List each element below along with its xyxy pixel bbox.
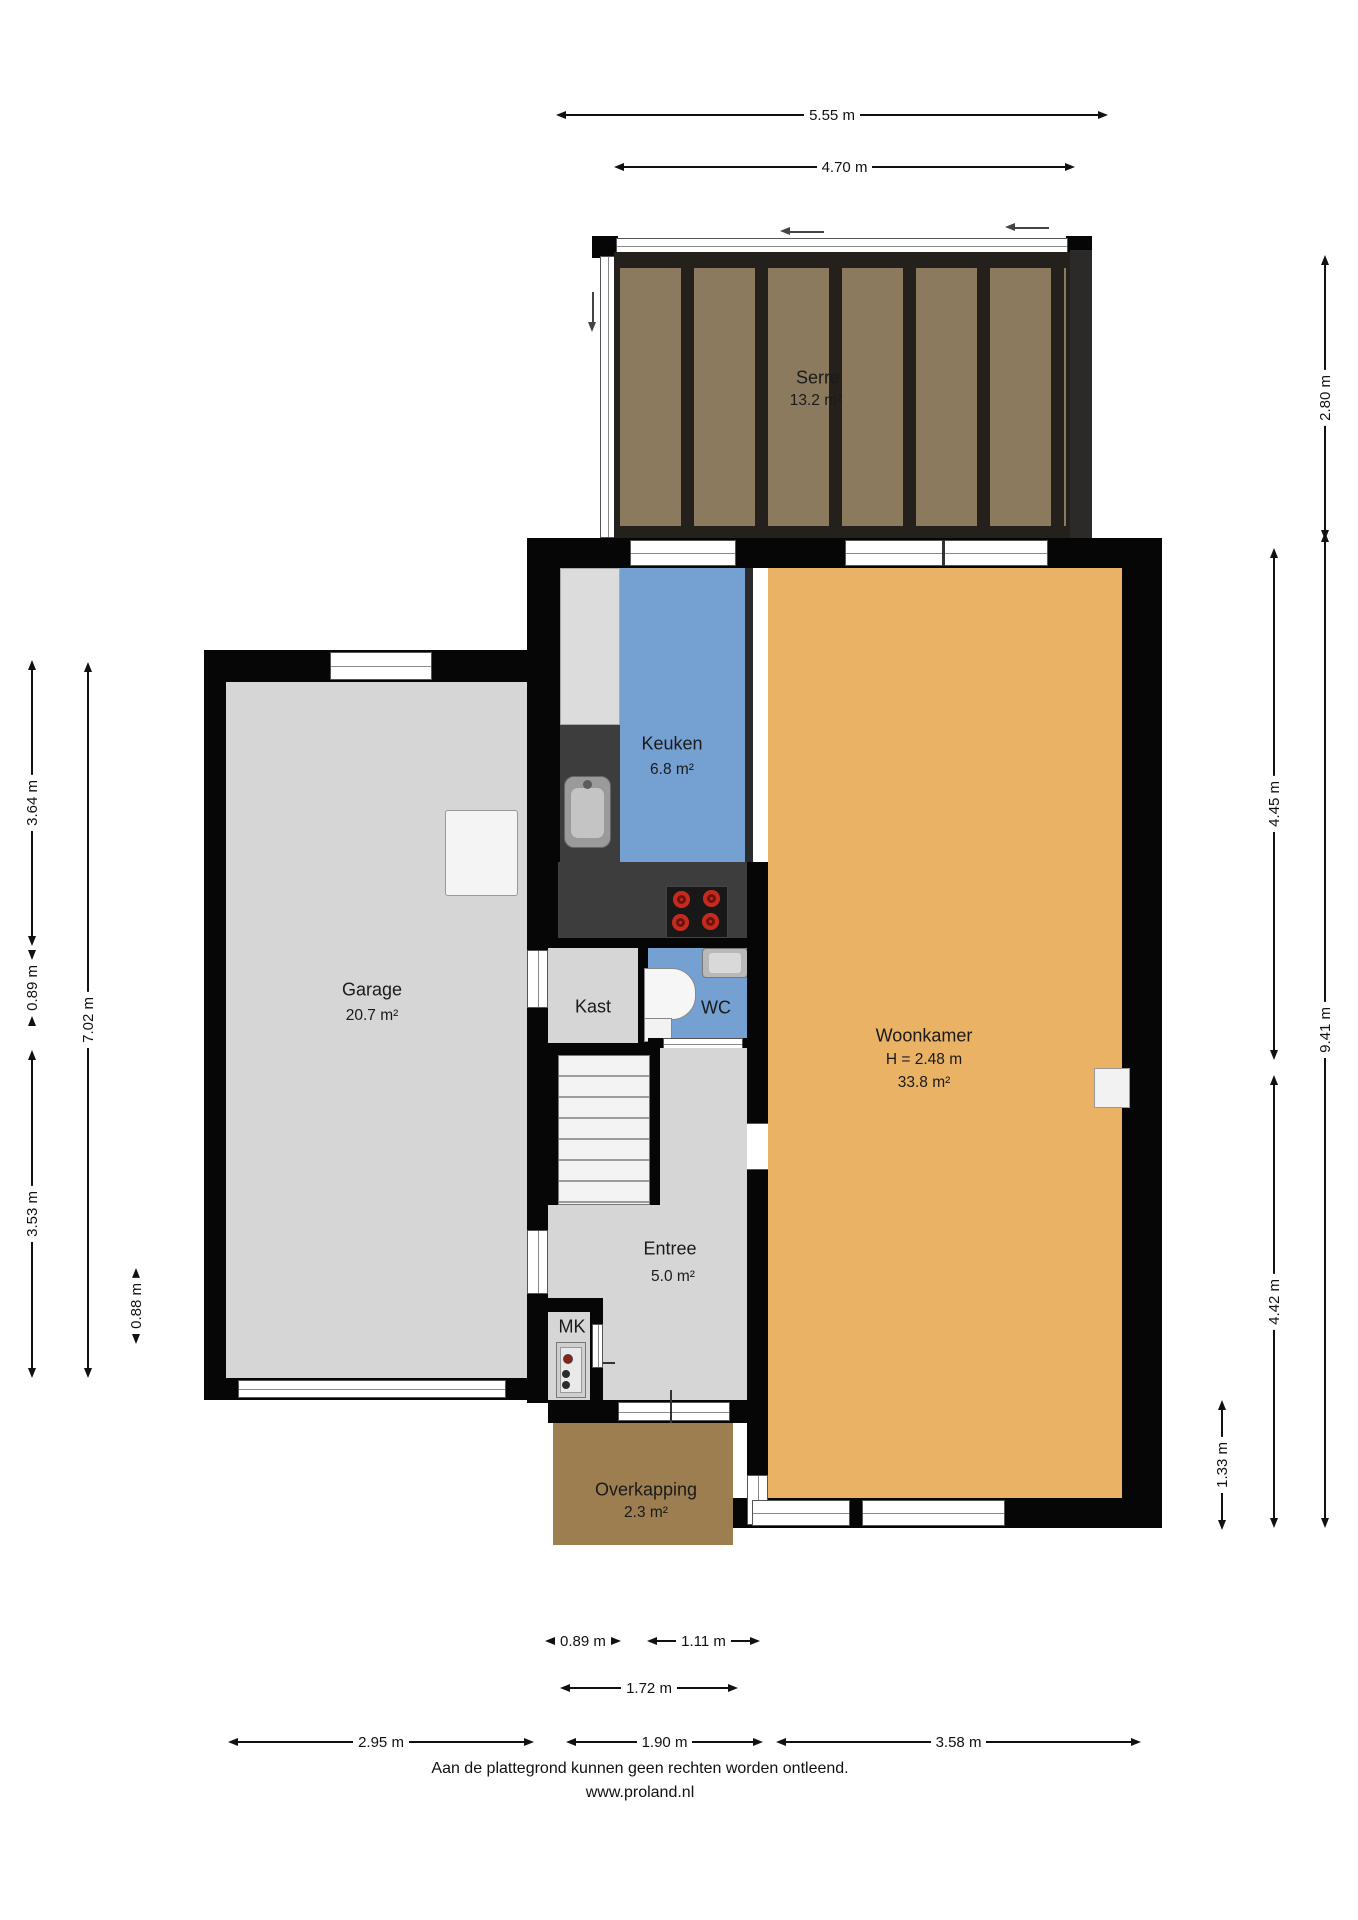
dim-arrow-icon (611, 1637, 621, 1645)
dim-arrow-icon (776, 1738, 786, 1746)
room-label-wc: WC (701, 998, 731, 1019)
kast-floor (548, 948, 638, 1043)
staircase (558, 1055, 650, 1205)
dim-bottom-door: 1.11 m (647, 1631, 760, 1651)
sliding-door-mullion (942, 540, 945, 566)
dim-arrow-icon (1321, 1518, 1329, 1528)
disclaimer-text: Aan de plattegrond kunnen geen rechten w… (0, 1760, 1280, 1778)
room-label-entree: Entree (643, 1239, 696, 1260)
stairs-right-wall (650, 1043, 660, 1205)
dim-arrow-icon (1270, 548, 1278, 558)
kitchen-hall-wall (548, 938, 747, 948)
stairs-top-wall (545, 1043, 660, 1055)
room-label-overkapping: Overkapping (595, 1480, 697, 1501)
entree-corridor-floor (660, 1048, 747, 1205)
dim-arrow-icon (28, 660, 36, 670)
dim-arrow-icon (132, 1334, 140, 1344)
kitchen-sink-basin (571, 788, 604, 838)
room-label-mk: MK (559, 1317, 586, 1338)
entree-living-doorway (747, 1123, 768, 1170)
meter-indicator-dark (562, 1381, 570, 1389)
garage-top-window (330, 652, 432, 680)
dim-right-total: 9.41 m (1313, 532, 1337, 1528)
kitchen-living-divider (745, 568, 753, 862)
dim-right-lower: 4.42 m (1262, 1075, 1286, 1528)
room-label-keuken: Keuken (641, 734, 702, 755)
toilet-icon (644, 968, 696, 1020)
dim-arrow-icon (753, 1738, 763, 1746)
room-area-overkapping: 2.3 m² (624, 1504, 668, 1522)
dim-arrow-icon (28, 1050, 36, 1060)
dim-right-serre: 2.80 m (1313, 255, 1337, 540)
dim-left-lower: 3.53 m (20, 1050, 44, 1378)
living-bottom-window-right (862, 1500, 1005, 1526)
room-label-serre: Serre (796, 368, 840, 389)
entry-arrow-line (592, 292, 594, 322)
dim-left-small: 0.89 m (20, 950, 44, 1046)
room-label-kast: Kast (575, 997, 611, 1018)
dim-arrow-icon (1270, 1075, 1278, 1085)
vent-arrow-line-1 (788, 231, 824, 233)
dim-arrow-icon (1065, 163, 1075, 171)
garage-bottom-window (238, 1380, 506, 1398)
room-area-woonkamer: 33.8 m² (898, 1074, 951, 1092)
mk-door (592, 1324, 603, 1368)
dim-top-outer: 5.55 m (556, 105, 1108, 125)
dim-arrow-icon (228, 1738, 238, 1746)
dim-right-small: 1.33 m (1210, 1400, 1234, 1530)
room-label-garage: Garage (342, 980, 402, 1001)
garage-boiler-cabinet (445, 810, 518, 896)
dim-arrow-icon (84, 1368, 92, 1378)
entry-arrow-icon (588, 322, 596, 332)
garage-left-wall (204, 650, 226, 1400)
dim-arrow-icon (560, 1684, 570, 1692)
room-area-entree: 5.0 m² (651, 1268, 695, 1286)
dim-right-upper: 4.45 m (1262, 548, 1286, 1060)
dim-left-offset: 0.88 m (124, 1268, 148, 1374)
cooktop-burner-icon (672, 914, 689, 931)
floorplan-canvas: Serre 13.2 m² Garage 20.7 m² Keuken 6.8 … (0, 0, 1358, 1920)
room-area-keuken: 6.8 m² (650, 761, 694, 779)
dim-arrow-icon (556, 111, 566, 119)
dim-arrow-icon (614, 163, 624, 171)
website-text: www.proland.nl (0, 1784, 1280, 1802)
dim-arrow-icon (28, 936, 36, 946)
front-door (618, 1402, 730, 1421)
meter-indicator-dark (562, 1370, 570, 1378)
dim-arrow-icon (132, 1268, 140, 1278)
dim-bottom-small-left: 0.89 m (545, 1631, 640, 1651)
room-area-serre: 13.2 m² (790, 392, 843, 410)
garage-floor (226, 682, 527, 1378)
stairs-left-wall (545, 1055, 558, 1205)
vent-arrow-line-2 (1013, 227, 1049, 229)
room-label-woonkamer: Woonkamer (876, 1026, 973, 1047)
dim-arrow-icon (647, 1637, 657, 1645)
cooktop-burner-icon (673, 891, 690, 908)
dim-bottom-entree: 1.90 m (566, 1732, 763, 1752)
dim-arrow-icon (1270, 1518, 1278, 1528)
dim-bottom-garage: 2.95 m (228, 1732, 534, 1752)
vent-arrow-icon-1 (780, 227, 790, 235)
dim-arrow-icon (545, 1637, 555, 1645)
dim-left-upper: 3.64 m (20, 660, 44, 946)
dim-arrow-icon (524, 1738, 534, 1746)
wall-niche-radiator (1094, 1068, 1130, 1108)
dim-arrow-icon (1218, 1520, 1226, 1530)
dim-arrow-icon (28, 1016, 36, 1026)
dim-arrow-icon (1098, 111, 1108, 119)
dim-arrow-icon (28, 950, 36, 960)
hand-basin-bowl (709, 953, 741, 973)
dim-left-total: 7.02 m (76, 662, 100, 1378)
garage-kast-door (527, 950, 548, 1008)
kitchen-sink-faucet (583, 780, 592, 789)
kitchen-serre-window (630, 540, 736, 566)
house-top-wall (527, 538, 1160, 568)
garage-entree-door (527, 1230, 548, 1294)
room-area-garage: 20.7 m² (346, 1007, 399, 1025)
kitchen-left-wall (527, 538, 560, 948)
vent-arrow-icon-2 (1005, 223, 1015, 231)
dim-arrow-icon (1321, 532, 1329, 542)
dim-arrow-icon (1321, 255, 1329, 265)
meter-indicator-red (563, 1354, 573, 1364)
dim-arrow-icon (1131, 1738, 1141, 1746)
house-right-wall (1122, 538, 1162, 1528)
living-serre-sliding-door (845, 540, 1048, 566)
cooktop-burner-icon (703, 890, 720, 907)
kitchen-tall-cabinet (560, 568, 620, 725)
serre-roof-panels (620, 268, 1066, 526)
serre-right-wall (1070, 250, 1092, 542)
kitchen-floor (620, 568, 747, 862)
cooktop-burner-icon (702, 913, 719, 930)
dim-arrow-icon (566, 1738, 576, 1746)
dim-arrow-icon (28, 1368, 36, 1378)
dim-arrow-icon (84, 662, 92, 672)
dim-arrow-icon (750, 1637, 760, 1645)
entree-living-wall (747, 862, 768, 1503)
dim-arrow-icon (1218, 1400, 1226, 1410)
living-bottom-window-left (752, 1500, 850, 1526)
dim-bottom-living: 3.58 m (776, 1732, 1141, 1752)
dim-bottom-porch: 1.72 m (560, 1678, 738, 1698)
mk-top-wall (530, 1298, 603, 1312)
dim-arrow-icon (728, 1684, 738, 1692)
dim-top-inner: 4.70 m (614, 157, 1075, 177)
mk-door-leaf (603, 1362, 615, 1364)
room-height-woonkamer: H = 2.48 m (886, 1051, 962, 1069)
dim-arrow-icon (1270, 1050, 1278, 1060)
